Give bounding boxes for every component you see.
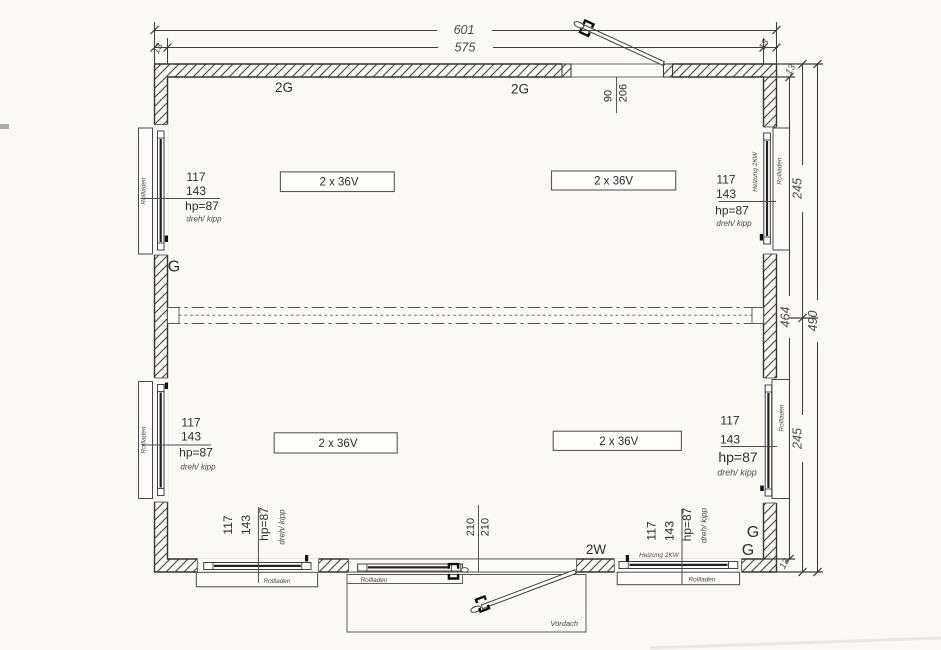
svg-text:464: 464 xyxy=(779,307,793,328)
svg-text:245: 245 xyxy=(791,428,805,450)
svg-text:2 x 36V: 2 x 36V xyxy=(599,436,638,448)
svg-text:117: 117 xyxy=(716,173,735,187)
svg-text:hp=87: hp=87 xyxy=(680,507,694,541)
svg-text:2 x 36V: 2 x 36V xyxy=(594,176,633,188)
svg-text:90: 90 xyxy=(603,90,615,102)
svg-text:117: 117 xyxy=(186,170,205,184)
svg-text:G: G xyxy=(747,524,759,541)
svg-text:117: 117 xyxy=(645,521,659,540)
svg-text:dreh/ kipp: dreh/ kipp xyxy=(278,509,287,545)
svg-text:G: G xyxy=(742,542,754,559)
svg-text:2G: 2G xyxy=(511,82,529,97)
svg-text:Rollladen: Rollladen xyxy=(777,157,784,184)
svg-text:Rollladen: Rollladen xyxy=(141,426,148,453)
svg-text:Rollladen: Rollladen xyxy=(263,578,290,585)
svg-text:dreh/ kipp: dreh/ kipp xyxy=(717,468,757,478)
svg-text:206: 206 xyxy=(618,84,630,102)
svg-text:601: 601 xyxy=(454,23,475,37)
svg-text:2 x 36V: 2 x 36V xyxy=(319,438,358,450)
svg-text:hp=87: hp=87 xyxy=(718,449,758,465)
svg-text:G: G xyxy=(168,259,180,276)
svg-text:hp=87: hp=87 xyxy=(257,507,271,541)
svg-text:210: 210 xyxy=(480,518,492,536)
svg-text:dreh/ kipp: dreh/ kipp xyxy=(700,507,709,543)
svg-text:dreh/ kipp: dreh/ kipp xyxy=(180,463,216,472)
svg-text:143: 143 xyxy=(186,184,206,198)
svg-text:hp=87: hp=87 xyxy=(715,204,749,218)
svg-text:Heizung 2KW: Heizung 2KW xyxy=(752,151,759,192)
svg-text:2 x 36V: 2 x 36V xyxy=(320,177,359,189)
svg-text:2W: 2W xyxy=(586,542,607,557)
svg-text:117: 117 xyxy=(181,416,200,430)
svg-text:2G: 2G xyxy=(275,80,293,95)
svg-text:117: 117 xyxy=(720,414,739,428)
svg-text:143: 143 xyxy=(720,433,740,447)
svg-text:575: 575 xyxy=(455,41,476,55)
svg-text:490: 490 xyxy=(806,311,820,332)
svg-text:Rollladen: Rollladen xyxy=(688,577,715,584)
svg-text:117: 117 xyxy=(221,515,235,534)
svg-text:143: 143 xyxy=(716,187,736,201)
svg-text:245: 245 xyxy=(791,178,805,200)
svg-text:Rollladen: Rollladen xyxy=(141,177,148,204)
svg-text:Vordach: Vordach xyxy=(550,619,578,628)
svg-text:Rollladen: Rollladen xyxy=(779,404,786,431)
svg-text:143: 143 xyxy=(239,515,253,535)
svg-text:Rollladen: Rollladen xyxy=(360,577,387,584)
svg-text:hp=87: hp=87 xyxy=(179,446,213,460)
svg-text:dreh/ kipp: dreh/ kipp xyxy=(186,215,222,224)
svg-text:143: 143 xyxy=(181,430,201,444)
svg-text:210: 210 xyxy=(465,518,477,536)
svg-text:143: 143 xyxy=(663,521,677,541)
svg-text:dreh/ kipp: dreh/ kipp xyxy=(716,219,752,228)
svg-text:Heizung 2KW: Heizung 2KW xyxy=(639,552,680,559)
svg-text:hp=87: hp=87 xyxy=(185,199,219,213)
